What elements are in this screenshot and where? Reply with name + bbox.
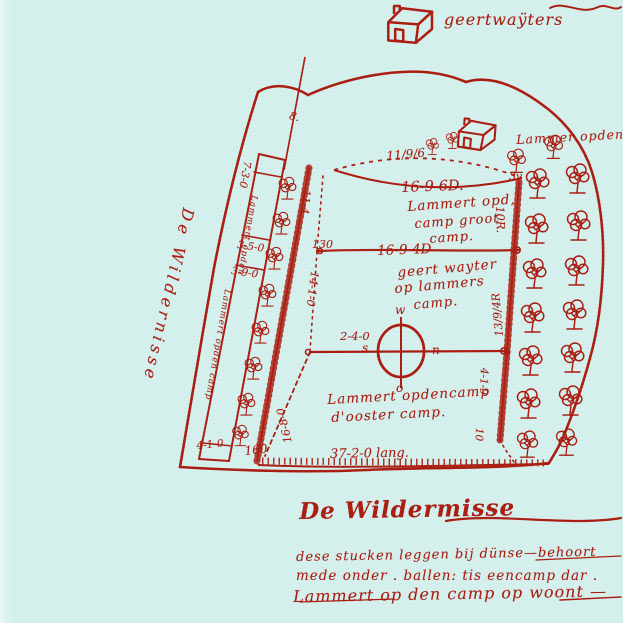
compass-north: n (432, 344, 440, 356)
top-field-edge-left: 11-4 (299, 189, 312, 215)
top-farm-label: geertwaÿters (444, 12, 563, 28)
middle-field-owner-3: camp. (413, 295, 459, 312)
bottom-field-edge-right-b: 10 (473, 428, 484, 442)
compass-west: w (395, 304, 405, 316)
compass-east: o (396, 382, 403, 394)
shrubs-top-right (426, 132, 458, 154)
farmhouse-top-icon (388, 6, 432, 43)
middle-field-area: 16-9-4D (377, 243, 432, 258)
top-field-corner: 3v (509, 171, 522, 182)
bottom-field-edge-right-a: 4-1-9 (478, 368, 489, 395)
bottom-field-corner: 160 (244, 443, 268, 457)
top-field-area: 16-9-6D. (401, 179, 464, 196)
top-field-arc-dashed (334, 158, 522, 178)
top-field-edge-right: 10R. (494, 206, 506, 233)
farmhouse-right-icon (458, 118, 496, 151)
bottom-field-edge-bottom: 37-2-0 lang. (330, 447, 409, 461)
top-field-owner-3: camp. (429, 230, 475, 246)
strip-number-4: 4-1-0 (196, 439, 224, 452)
bottom-band (258, 461, 549, 467)
compass-south: s (362, 342, 368, 354)
boundary-mark: 8. (288, 110, 301, 123)
top-field-edge-top: 11/9/6 (386, 147, 426, 162)
map-drawing (0, 0, 623, 623)
strip-corner-number: 130 (312, 239, 333, 250)
manuscript-map-page: geertwaÿters Lammer opdencamp 11/9/6 3v … (0, 0, 623, 623)
middle-field-edge-right: 13/9/4R (490, 293, 505, 337)
wilderness-bottom-title: De Wildermisse (299, 496, 515, 523)
